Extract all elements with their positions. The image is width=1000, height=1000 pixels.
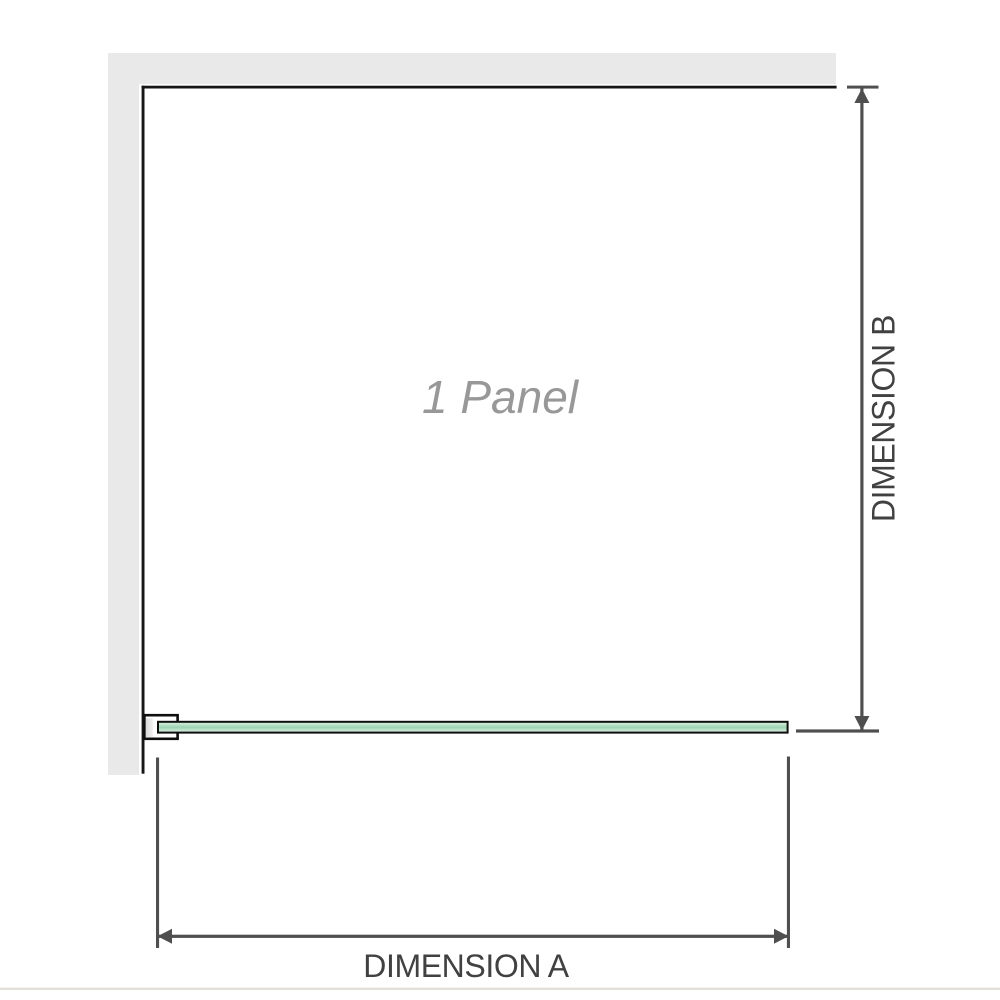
svg-text:1 Panel: 1 Panel (422, 371, 580, 423)
svg-text:DIMENSION A: DIMENSION A (363, 948, 569, 984)
svg-text:DIMENSION B: DIMENSION B (866, 315, 902, 522)
